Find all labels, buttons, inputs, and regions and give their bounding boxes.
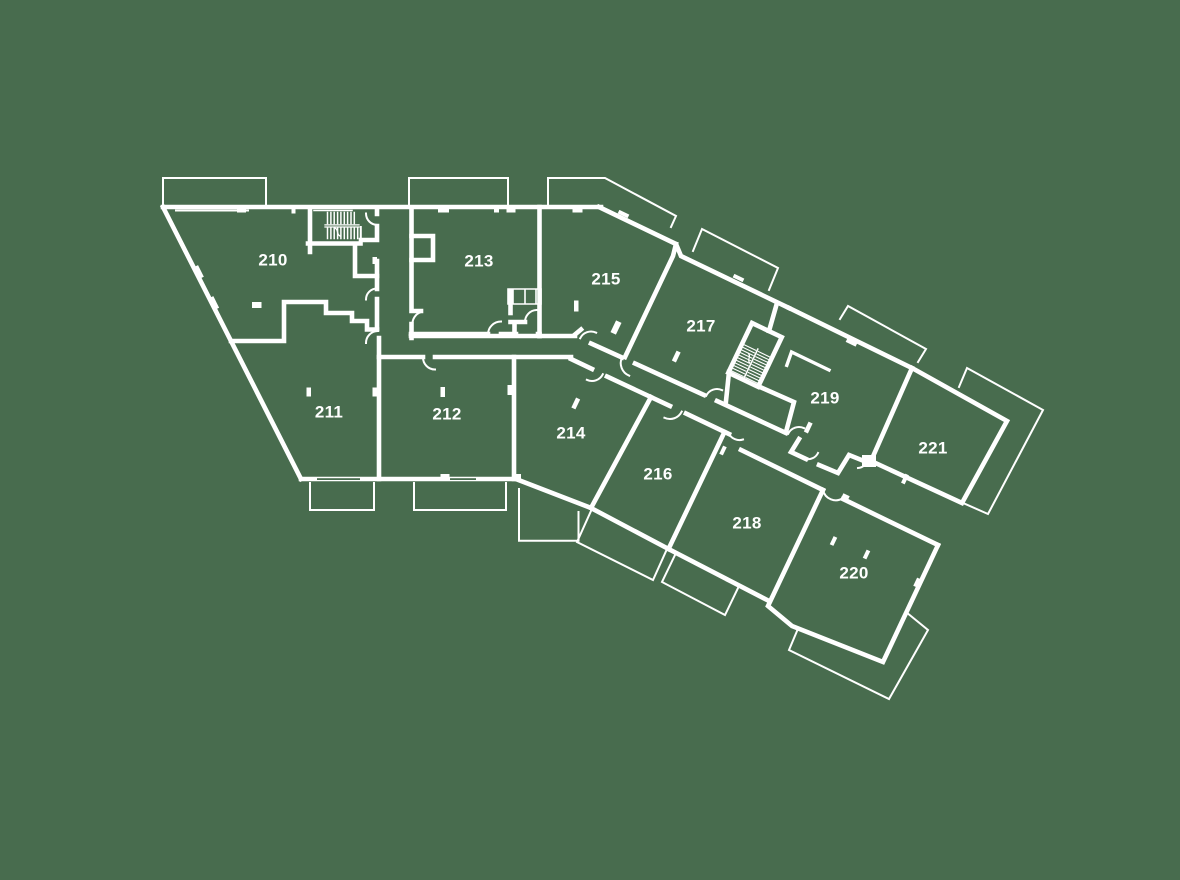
svg-text:220: 220 xyxy=(839,563,868,582)
svg-text:212: 212 xyxy=(432,404,461,423)
svg-text:213: 213 xyxy=(464,251,493,270)
svg-text:221: 221 xyxy=(918,438,947,457)
svg-text:216: 216 xyxy=(643,464,672,483)
svg-text:217: 217 xyxy=(686,316,715,335)
svg-text:214: 214 xyxy=(556,423,586,442)
svg-text:210: 210 xyxy=(258,250,287,269)
svg-text:219: 219 xyxy=(810,388,839,407)
svg-text:218: 218 xyxy=(732,513,761,532)
svg-text:211: 211 xyxy=(315,402,343,421)
svg-text:215: 215 xyxy=(591,269,620,288)
